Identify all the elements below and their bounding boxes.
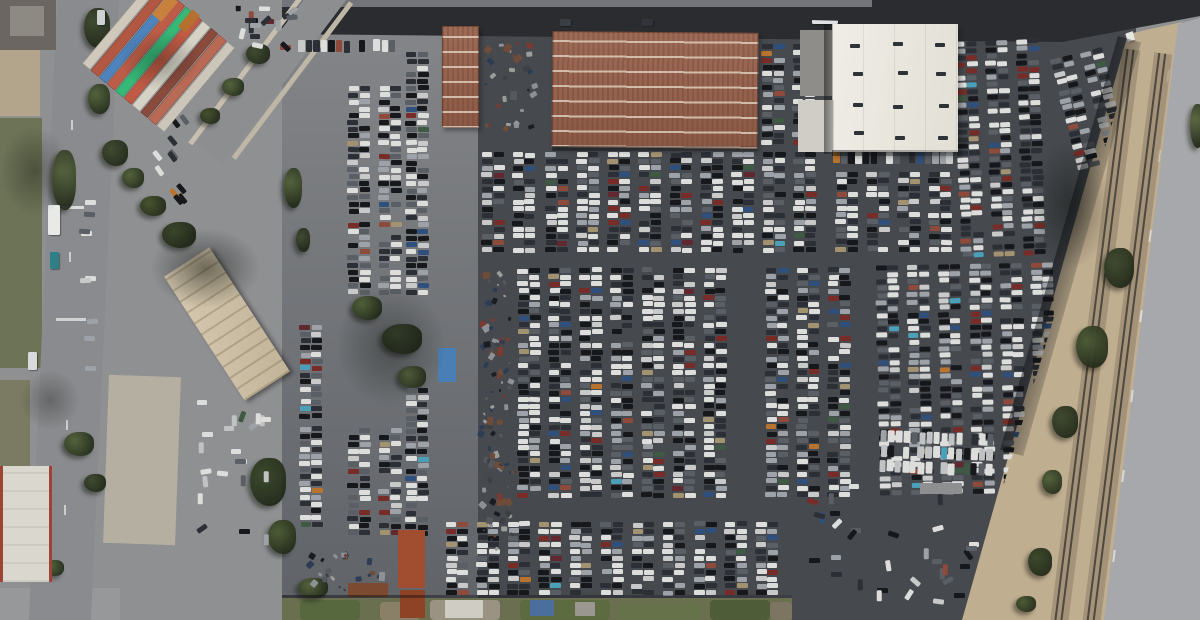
parked-car [684,397,695,402]
parked-car [973,488,984,493]
parked-car [654,275,665,280]
parked-car [517,269,528,274]
parked-car [654,485,665,490]
parked-car [348,229,359,234]
parked-car [638,152,649,157]
parked-car [955,49,966,54]
parked-car [794,241,805,246]
parked-car [349,202,360,207]
parked-car [311,502,322,507]
parked-car [447,569,458,574]
parked-car [970,177,981,183]
parked-car [1015,467,1026,472]
parked-car [940,386,951,391]
parked-car [1045,418,1056,423]
parked-car [557,241,568,246]
top-road [0,0,1200,620]
parked-car [418,395,429,400]
parked-car [623,432,634,437]
parked-car [847,206,858,211]
parked-car [653,391,664,396]
parked-car [378,489,389,494]
parked-car [379,523,390,528]
blue-tarp-canopy [438,348,456,382]
parked-car [675,556,686,561]
parked-car [998,102,1009,107]
tree [398,366,426,388]
parked-car [1001,366,1012,371]
parked-car [794,65,805,70]
parked-car [653,397,664,402]
tree [1190,104,1200,148]
parked-car [494,234,505,239]
parked-car [694,590,705,595]
parked-car [980,291,991,296]
warehouse-south-shadow [552,146,758,151]
parked-car [642,479,653,484]
parked-car [889,347,900,352]
parked-car [549,296,560,301]
parked-car [300,495,311,500]
parked-car [972,455,983,460]
parked-car [591,275,602,280]
parked-car [513,227,524,232]
parked-car [300,387,311,392]
parked-car [560,485,571,490]
parked-car [446,529,457,534]
parked-car [921,401,932,406]
parked-car [608,179,619,184]
parked-car [991,197,1002,202]
parked-car [561,465,572,470]
parked-car [715,383,726,388]
parked-car [391,455,402,460]
parked-car [197,400,208,405]
parked-car [737,590,748,595]
parked-car [417,449,428,454]
parked-car [612,329,623,334]
parked-car [983,393,994,398]
parked-car [766,439,777,444]
parked-car [550,583,561,588]
parked-car [701,240,712,245]
parked-car [797,377,808,382]
parked-car [639,193,650,198]
parked-car [956,433,963,445]
parked-car [643,549,654,554]
parked-car [756,590,767,595]
parked-car [642,343,653,348]
debris [502,394,506,398]
parked-car [549,288,560,293]
parked-car [766,282,777,287]
parked-car [950,284,961,289]
parked-car [489,549,500,554]
lane-marking [66,420,68,430]
parked-car [777,492,788,497]
parked-car [311,495,322,500]
parked-car [682,220,693,225]
parked-car [651,165,662,170]
white-car-west-street-2 [97,10,105,25]
parked-car [417,195,428,200]
parked-car [1044,351,1055,356]
parked-car [681,165,692,170]
parked-car [519,295,530,300]
parked-car [348,270,359,275]
debris [504,462,510,467]
parked-car [1075,108,1086,116]
lot-row2-wide-block [546,152,834,256]
parked-car [743,186,754,191]
parked-car [775,234,786,239]
parked-car [311,468,322,473]
parked-car [887,266,898,271]
parked-car [836,239,847,244]
debris [509,471,512,475]
parked-car [763,240,774,245]
parked-car [713,241,724,246]
parked-car [713,233,724,238]
parked-car [494,179,505,184]
tree [44,560,64,576]
debris [325,573,329,578]
parked-car [797,438,808,443]
parked-car [1044,310,1055,315]
parked-car [379,455,390,460]
parked-car [418,127,429,132]
parked-car [488,522,499,527]
parked-car [795,152,806,157]
parked-car [1103,136,1114,143]
parked-car [418,490,429,495]
parked-car [681,207,692,212]
parked-car [971,311,982,316]
parked-car [961,211,972,216]
debris [479,425,485,430]
parked-car [954,462,965,467]
parked-car [551,542,562,547]
grass-patch [430,600,500,620]
roof-vent [893,105,903,109]
parked-car [808,268,819,273]
parked-car [704,431,715,436]
parked-car [418,388,429,393]
parked-car [609,227,620,232]
parked-car [391,188,402,193]
parked-car [348,510,359,515]
parked-car [406,531,417,536]
parked-car [777,384,788,389]
parked-car [359,523,370,528]
parked-car [911,490,922,495]
parked-car [300,373,311,378]
parked-car [1034,467,1045,472]
parked-car [706,522,717,527]
parked-car [622,376,633,381]
white-building-apron-row [833,152,957,169]
parked-car [1070,87,1081,94]
parked-car [939,333,950,338]
parked-car [773,118,784,123]
parked-car [766,268,777,273]
parked-car [633,542,644,547]
parked-car [885,560,892,571]
parked-car [891,415,902,420]
nw-building-roof [0,0,56,50]
parked-car [1093,53,1104,60]
parked-car [836,233,847,238]
parked-car [580,492,591,497]
parked-car [1013,406,1024,411]
parked-car [623,459,634,464]
parked-car [908,374,919,379]
debris [483,529,486,532]
parked-car [797,343,808,348]
parked-car [406,113,417,118]
parked-car [767,577,778,582]
parked-car [347,195,358,200]
parked-car [877,320,888,325]
parked-car [939,292,950,297]
parked-car [592,445,603,450]
debris [306,561,315,570]
parked-car [1045,392,1056,397]
parked-car [1073,149,1084,156]
parked-car [797,486,808,491]
parked-car [767,543,778,548]
parked-car [651,227,662,232]
parked-car [829,493,834,504]
parked-car [809,404,820,409]
parked-car [653,424,664,429]
parked-car [829,275,840,280]
parked-car [551,556,562,561]
parked-car [405,121,416,126]
parked-car [991,204,1002,209]
parked-car [985,481,996,486]
parked-car [379,263,390,268]
debris [493,534,496,537]
parked-car [808,492,819,497]
parked-car [360,202,371,207]
parked-car [809,350,820,355]
right-road [0,0,1200,620]
parked-car [715,479,726,484]
parked-car [476,577,487,582]
parked-car [1035,439,1046,444]
parked-car [549,370,560,375]
parked-car [764,172,775,177]
parked-car [663,529,674,534]
parked-car [406,511,417,516]
parked-car [348,449,359,454]
parked-car [348,154,359,159]
parked-car [348,442,359,447]
vegetation-layer [0,0,1200,620]
parked-car [1045,378,1056,383]
parked-car [878,367,889,372]
parked-car [619,179,630,184]
parked-car [793,206,804,211]
parked-car [685,445,696,450]
parked-car [970,325,981,330]
parked-car [737,569,748,574]
lane-marking [71,120,73,130]
parked-car [651,159,662,164]
parked-car [798,288,809,293]
parked-car [774,85,785,90]
parked-car [908,326,919,331]
parked-car [939,305,950,310]
parked-car [1044,345,1055,350]
parked-car [909,193,920,198]
parked-car [986,463,993,475]
parked-car [622,492,633,497]
parked-car [561,350,572,355]
parked-car [953,427,964,432]
parked-car [918,462,925,474]
parked-car [168,149,178,160]
parked-car [685,302,696,307]
white-building-south-shadow [832,150,962,156]
parked-car [774,98,785,103]
parked-car [985,41,996,46]
parked-car [909,212,920,217]
parked-car [839,268,850,273]
parked-car [909,151,916,163]
parked-car [892,490,903,495]
parked-car [941,213,952,218]
parked-car [733,186,744,191]
parked-car [406,161,417,166]
debris [483,419,488,424]
debris [322,577,327,583]
parked-car [840,390,851,395]
debris [503,404,508,410]
parked-car [588,234,599,239]
parked-car [580,431,591,436]
parked-car [923,462,934,467]
parked-car [477,543,488,548]
parked-car [591,397,602,402]
parked-car [418,250,429,255]
parked-car [619,186,630,191]
parked-car [360,93,371,98]
parked-car [674,535,685,540]
white-warehouse [832,24,958,152]
parked-car [360,86,371,91]
parked-car [611,452,622,457]
parked-car [743,159,754,164]
parked-car [651,247,662,252]
parked-car [545,152,556,157]
tree-shadow [1030,140,1110,270]
parked-car [200,468,211,475]
parked-car [549,417,560,422]
parked-car [654,472,665,477]
parked-car [701,152,712,157]
parked-car [809,281,820,286]
parked-car [1085,69,1096,77]
parked-car [610,288,621,293]
parked-car [360,283,371,288]
parked-car [715,288,726,293]
parked-car [888,286,899,291]
parked-car [880,462,891,467]
parked-car [767,465,778,470]
parked-car [446,563,457,568]
parked-car [488,542,499,547]
parked-car [489,590,500,595]
parked-car [653,350,664,355]
parked-car [894,460,901,472]
parked-car [968,96,979,101]
parked-car [808,384,819,389]
parked-car [669,173,680,178]
parked-car [763,152,774,157]
parked-car [987,109,998,114]
parked-car [918,264,929,269]
parked-car [379,222,390,227]
parked-car [610,391,621,396]
parked-car [458,563,469,568]
ne-sidewalk-west [188,0,312,145]
parked-car [390,113,401,118]
parked-car [489,556,500,561]
parked-car [703,492,714,497]
debris [526,52,532,57]
parked-car [569,535,580,540]
parked-car [933,598,944,604]
parked-car [494,152,505,157]
parked-car [767,590,778,595]
parked-car [549,377,560,382]
lot-center-east-block [766,268,868,498]
parked-car [380,92,391,97]
parked-car [1036,243,1047,248]
parked-car [418,256,429,261]
parked-car [983,400,994,405]
parked-car [489,584,500,589]
parked-car [716,377,727,382]
parked-car [763,248,774,253]
parked-car [1043,270,1054,275]
parked-car [546,214,557,219]
parked-car [998,94,1009,99]
parked-car [494,165,505,170]
parked-car [549,301,560,306]
parked-car [261,15,272,26]
parked-car [601,549,612,554]
parked-car [827,452,838,457]
parked-car [613,522,624,527]
parked-car [911,483,922,488]
satellite-map[interactable] [0,0,1200,620]
parked-car [986,47,997,52]
parked-car [808,391,819,396]
parked-car [1097,116,1108,123]
parked-car [406,167,417,172]
parked-car [1098,73,1109,80]
parked-car [517,451,528,456]
parked-car [167,135,178,146]
parked-car [571,529,582,534]
parked-car [805,65,816,70]
parked-car [623,370,634,375]
parked-car [982,351,993,356]
debris [510,91,517,100]
